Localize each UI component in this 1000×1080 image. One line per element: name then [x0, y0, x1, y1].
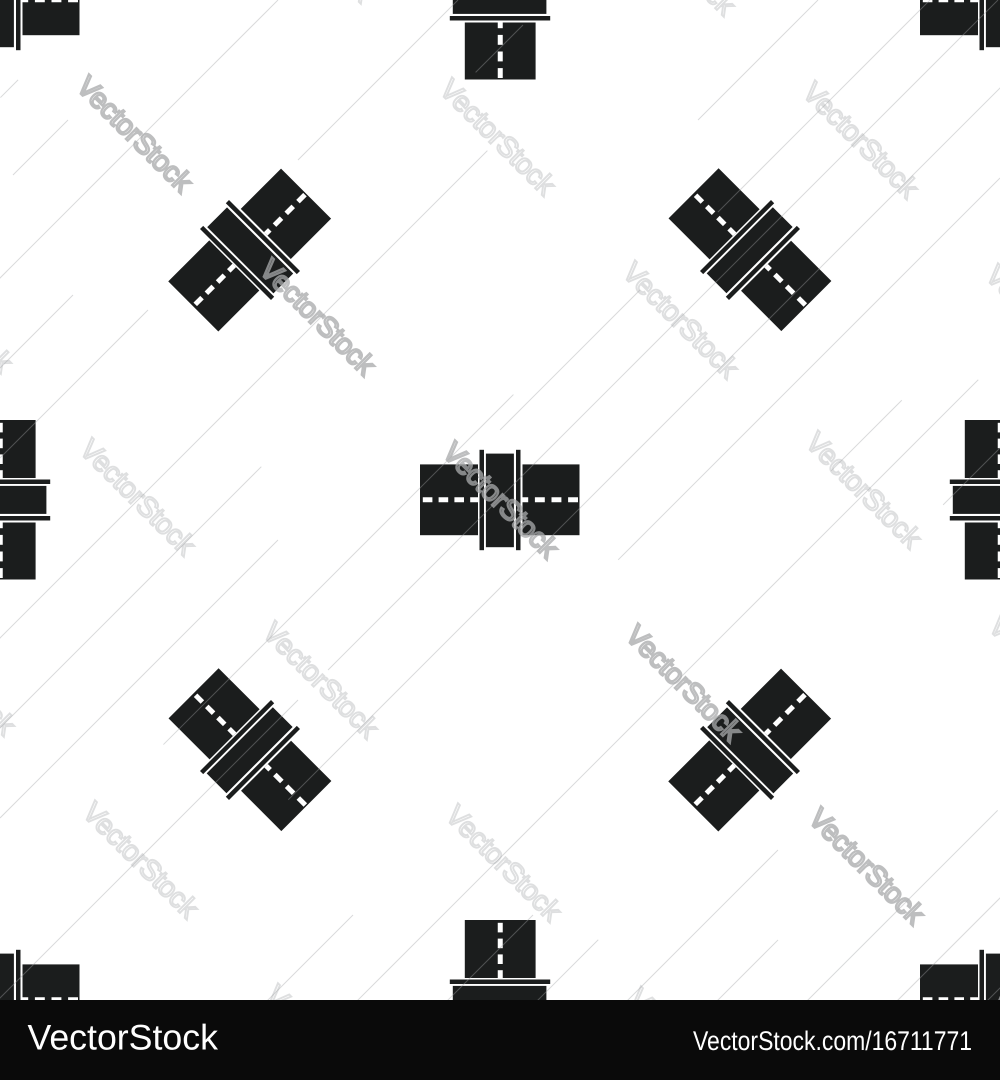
svg-text:VectorStock: VectorStock — [28, 1018, 219, 1058]
svg-text:VectorStock.com/16711771: VectorStock.com/16711771 — [693, 1026, 972, 1056]
